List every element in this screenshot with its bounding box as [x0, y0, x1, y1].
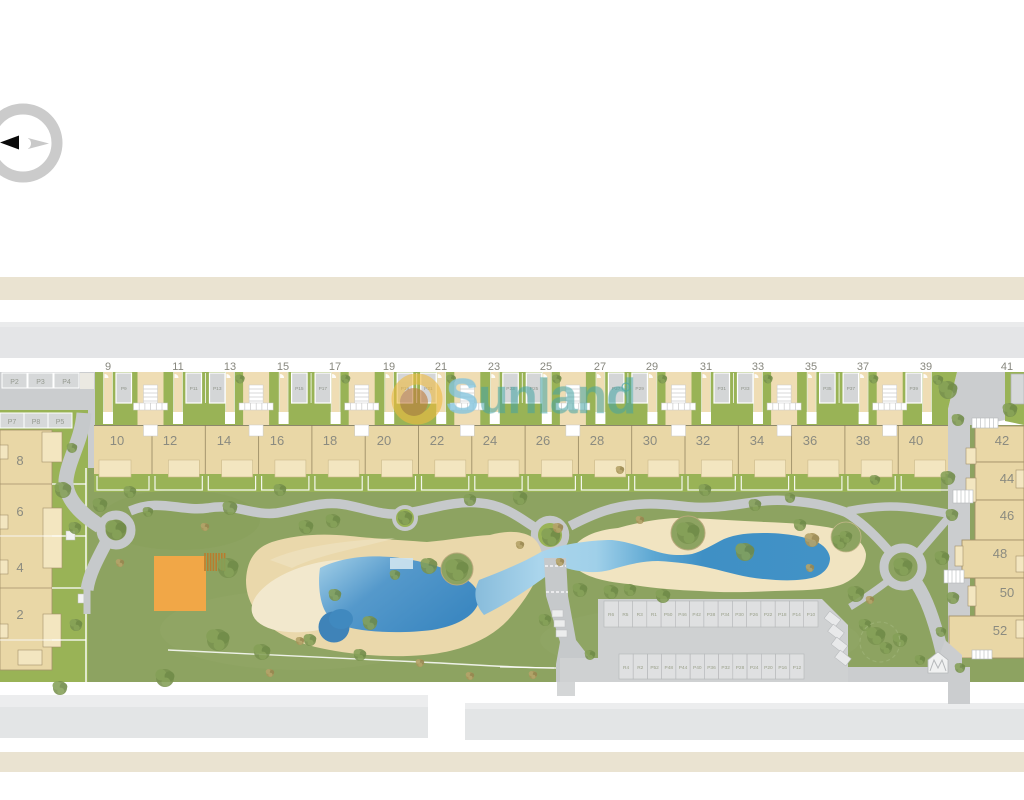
svg-text:P52: P52 — [650, 665, 659, 671]
svg-text:P44: P44 — [679, 665, 688, 671]
svg-text:P14: P14 — [792, 612, 801, 618]
svg-text:10: 10 — [110, 433, 124, 448]
svg-text:P34: P34 — [721, 612, 730, 618]
svg-text:22: 22 — [430, 433, 444, 448]
svg-text:14: 14 — [217, 433, 231, 448]
svg-text:33: 33 — [752, 361, 764, 373]
svg-text:P4: P4 — [62, 379, 71, 386]
svg-text:16: 16 — [270, 433, 284, 448]
svg-text:36: 36 — [803, 433, 817, 448]
svg-text:P15: P15 — [295, 386, 304, 392]
svg-text:R4: R4 — [623, 665, 629, 671]
svg-text:31: 31 — [700, 361, 712, 373]
svg-text:37: 37 — [857, 361, 869, 373]
svg-text:P18: P18 — [778, 612, 787, 618]
svg-text:P9: P9 — [121, 386, 127, 392]
svg-text:P30: P30 — [735, 612, 744, 618]
svg-text:34: 34 — [750, 433, 764, 448]
svg-text:P22: P22 — [764, 612, 773, 618]
svg-text:P28: P28 — [736, 665, 745, 671]
svg-text:17: 17 — [329, 361, 341, 373]
svg-text:6: 6 — [16, 504, 23, 519]
svg-text:P29: P29 — [635, 386, 644, 392]
svg-text:28: 28 — [590, 433, 604, 448]
svg-text:40: 40 — [909, 433, 923, 448]
svg-text:P3: P3 — [36, 379, 45, 386]
svg-text:18: 18 — [323, 433, 337, 448]
svg-text:P50: P50 — [664, 612, 673, 618]
svg-text:42: 42 — [995, 433, 1009, 448]
svg-text:26: 26 — [536, 433, 550, 448]
svg-text:P5: P5 — [56, 419, 65, 426]
svg-text:39: 39 — [920, 361, 932, 373]
svg-text:R2: R2 — [637, 665, 643, 671]
svg-text:P10: P10 — [807, 612, 816, 618]
svg-text:8: 8 — [16, 453, 23, 468]
svg-text:P20: P20 — [764, 665, 773, 671]
svg-text:P31: P31 — [717, 386, 726, 392]
svg-text:20: 20 — [377, 433, 391, 448]
svg-text:24: 24 — [483, 433, 497, 448]
svg-text:50: 50 — [1000, 585, 1014, 600]
svg-text:P2: P2 — [10, 379, 19, 386]
svg-text:35: 35 — [805, 361, 817, 373]
svg-text:P36: P36 — [707, 665, 716, 671]
svg-text:P37: P37 — [847, 386, 856, 392]
svg-text:R1: R1 — [651, 612, 657, 618]
svg-text:44: 44 — [1000, 471, 1014, 486]
svg-text:P32: P32 — [721, 665, 730, 671]
svg-text:P12: P12 — [793, 665, 802, 671]
svg-text:P33: P33 — [741, 386, 750, 392]
svg-text:P46: P46 — [678, 612, 687, 618]
svg-text:9: 9 — [105, 361, 111, 373]
svg-text:12: 12 — [163, 433, 177, 448]
svg-text:R5: R5 — [622, 612, 628, 618]
svg-text:13: 13 — [224, 361, 236, 373]
svg-text:29: 29 — [646, 361, 658, 373]
svg-text:P13: P13 — [213, 386, 222, 392]
svg-text:P48: P48 — [665, 665, 674, 671]
svg-text:38: 38 — [856, 433, 870, 448]
svg-text:R3: R3 — [637, 612, 643, 618]
svg-text:32: 32 — [696, 433, 710, 448]
svg-text:19: 19 — [383, 361, 395, 373]
svg-text:R: R — [624, 386, 628, 392]
svg-text:46: 46 — [1000, 508, 1014, 523]
svg-text:P26: P26 — [750, 612, 759, 618]
svg-text:P11: P11 — [190, 386, 199, 392]
svg-text:2: 2 — [16, 607, 23, 622]
svg-text:Sunland: Sunland — [446, 370, 636, 424]
svg-text:41: 41 — [1001, 361, 1013, 373]
svg-text:48: 48 — [993, 546, 1007, 561]
svg-text:P8: P8 — [32, 419, 41, 426]
svg-text:4: 4 — [16, 560, 23, 575]
svg-text:15: 15 — [277, 361, 289, 373]
svg-text:P39: P39 — [909, 386, 918, 392]
svg-text:52: 52 — [993, 623, 1007, 638]
svg-text:P40: P40 — [693, 665, 702, 671]
svg-text:P24: P24 — [750, 665, 759, 671]
svg-text:P42: P42 — [692, 612, 701, 618]
svg-text:P16: P16 — [778, 665, 787, 671]
svg-text:R6: R6 — [608, 612, 614, 618]
svg-text:30: 30 — [643, 433, 657, 448]
svg-text:P7: P7 — [8, 419, 17, 426]
svg-text:11: 11 — [172, 361, 183, 373]
svg-text:P38: P38 — [707, 612, 716, 618]
svg-text:P17: P17 — [319, 386, 328, 392]
svg-text:P35: P35 — [823, 386, 832, 392]
